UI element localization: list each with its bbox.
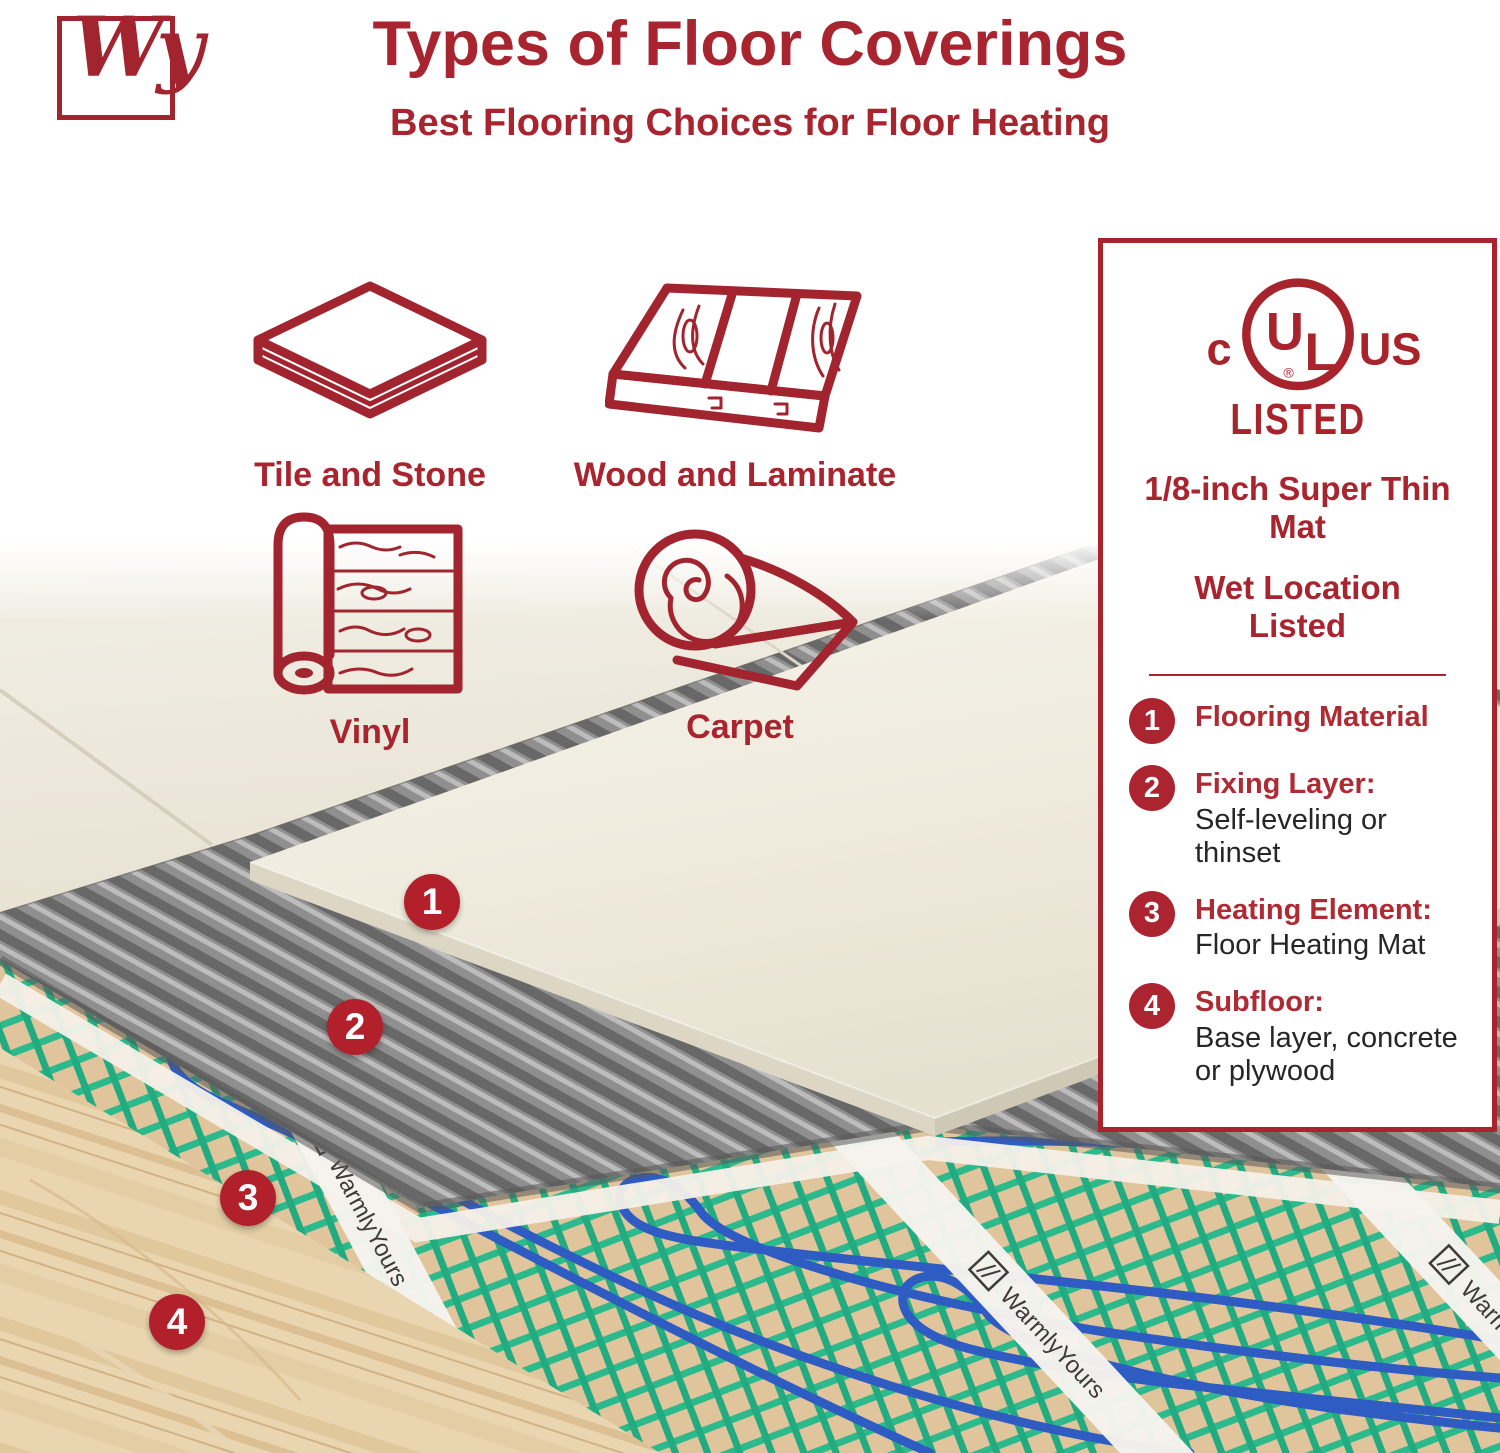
panel-divider	[1149, 674, 1446, 676]
flooring-type-label: Carpet	[686, 708, 794, 747]
ul-registered-mark: ®	[1283, 365, 1294, 381]
feature-wet-location: Wet Location Listed	[1168, 569, 1428, 644]
legend-title: Flooring Material	[1195, 702, 1429, 732]
legend-bullet-4: 4	[1129, 983, 1175, 1029]
layer-badge-2: 2	[327, 999, 383, 1055]
ul-listed-mark: U L ® c US LISTED	[1138, 261, 1458, 454]
layer-badge-1: 1	[404, 874, 460, 930]
legend-description: Base layer, concrete or plywood	[1195, 1022, 1474, 1088]
legend-bullet-2: 2	[1129, 765, 1175, 811]
vinyl-icon	[270, 505, 470, 703]
flooring-type-label: Wood and Laminate	[574, 456, 896, 495]
legend-bullet-3: 3	[1129, 891, 1175, 937]
ul-us-mark: US	[1358, 323, 1421, 374]
ul-listed-label: LISTED	[1230, 396, 1365, 444]
ul-letter-l: L	[1304, 323, 1336, 382]
legend-title: Heating Element:	[1195, 895, 1432, 925]
legend-title: Subfloor:	[1195, 987, 1474, 1017]
layer-legend: 1 Flooring Material 2 Fixing Layer: Self…	[1129, 702, 1474, 1088]
product-info-panel: U L ® c US LISTED 1/8-inch Super Thin Ma…	[1098, 238, 1497, 1132]
legend-description: Self-leveling or thinset	[1195, 804, 1474, 870]
legend-item-subfloor: 4 Subfloor: Base layer, concrete or plyw…	[1129, 987, 1474, 1088]
flooring-type-wood-laminate: Wood and Laminate	[570, 280, 900, 495]
infographic-canvas: WarmlyYours WarmlyYours WarmlyYours	[0, 0, 1500, 1453]
legend-title: Fixing Layer:	[1195, 769, 1474, 799]
flooring-type-label: Vinyl	[330, 713, 411, 752]
legend-bullet-1: 1	[1129, 698, 1175, 744]
tile-stone-icon	[250, 280, 490, 446]
page-title: Types of Floor Coverings	[0, 8, 1500, 80]
ul-canada-mark: c	[1206, 323, 1231, 374]
legend-description: Floor Heating Mat	[1195, 929, 1432, 962]
flooring-type-label: Tile and Stone	[254, 456, 486, 495]
page-subtitle: Best Flooring Choices for Floor Heating	[0, 102, 1500, 145]
layer-badge-3: 3	[220, 1170, 276, 1226]
flooring-type-tile-stone: Tile and Stone	[215, 280, 525, 495]
legend-item-flooring: 1 Flooring Material	[1129, 702, 1474, 744]
legend-item-heating-element: 3 Heating Element: Floor Heating Mat	[1129, 895, 1474, 962]
ul-certification-icon: U L ® c US LISTED	[1138, 261, 1458, 449]
ul-letter-u: U	[1265, 302, 1303, 361]
flooring-type-carpet: Carpet	[595, 510, 885, 747]
feature-thin-mat: 1/8-inch Super Thin Mat	[1133, 470, 1463, 545]
wood-laminate-icon	[605, 280, 865, 446]
legend-item-fixing-layer: 2 Fixing Layer: Self-leveling or thinset	[1129, 769, 1474, 870]
carpet-icon	[615, 510, 865, 698]
layer-badge-4: 4	[149, 1294, 205, 1350]
flooring-type-vinyl: Vinyl	[255, 505, 485, 752]
